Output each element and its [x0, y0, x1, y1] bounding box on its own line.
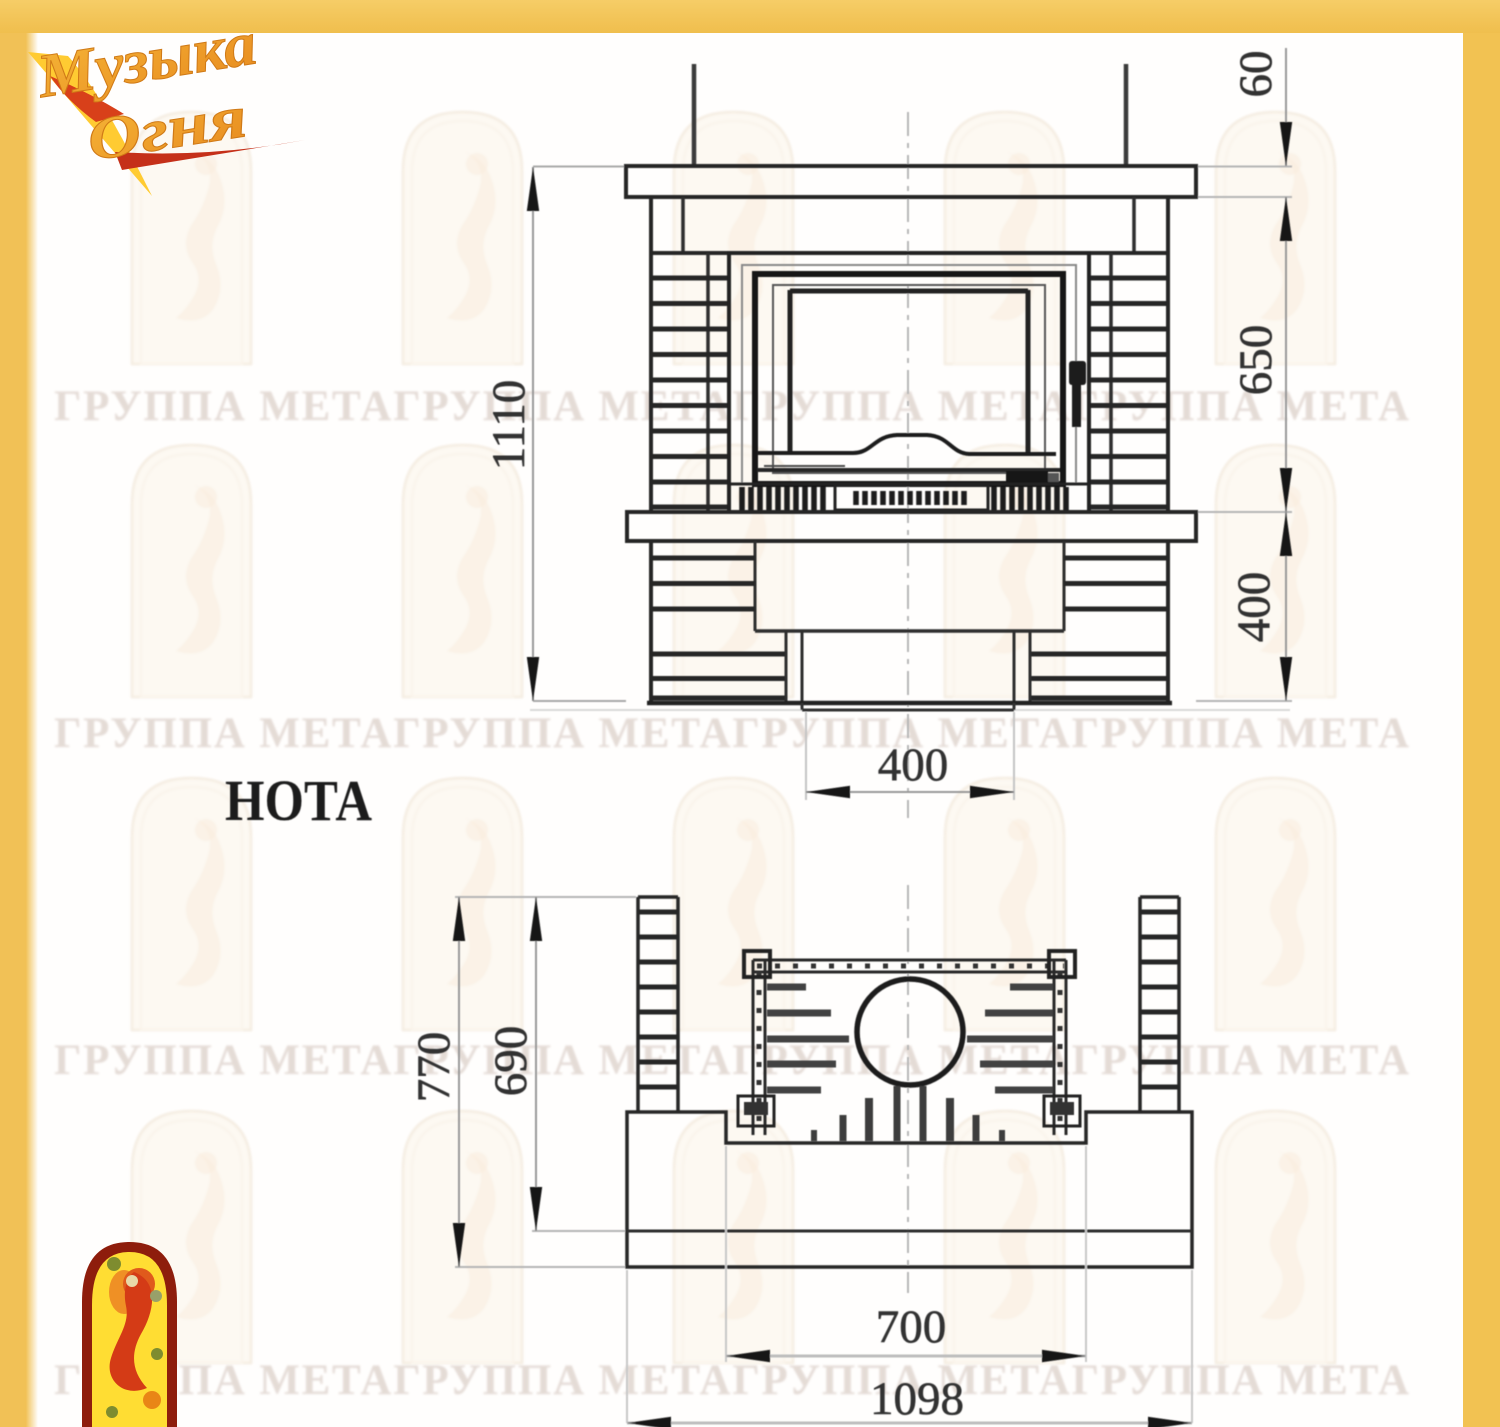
svg-text:ГРУППА МЕТАГРУППА МЕТАГРУППА М: ГРУППА МЕТАГРУППА МЕТАГРУППА МЕТАГРУППА … [54, 383, 1414, 430]
svg-text:400: 400 [878, 739, 949, 791]
svg-text:690: 690 [485, 1026, 537, 1097]
svg-text:60: 60 [1230, 51, 1282, 98]
svg-text:650: 650 [1230, 325, 1282, 396]
svg-text:ГРУППА МЕТАГРУППА МЕТАГРУППА М: ГРУППА МЕТАГРУППА МЕТАГРУППА МЕТАГРУППА … [54, 1357, 1414, 1404]
svg-text:400: 400 [1228, 572, 1280, 643]
svg-text:ГРУППА МЕТАГРУППА МЕТАГРУППА М: ГРУППА МЕТАГРУППА МЕТАГРУППА МЕТАГРУППА … [54, 710, 1414, 757]
svg-text:НОТА: НОТА [225, 768, 372, 833]
svg-text:1110: 1110 [483, 380, 535, 471]
svg-text:1098: 1098 [870, 1373, 964, 1425]
svg-text:770: 770 [408, 1032, 460, 1103]
svg-text:ГРУППА МЕТАГРУППА МЕТАГРУППА М: ГРУППА МЕТАГРУППА МЕТАГРУППА МЕТАГРУППА … [54, 1037, 1414, 1084]
svg-text:700: 700 [876, 1301, 947, 1353]
